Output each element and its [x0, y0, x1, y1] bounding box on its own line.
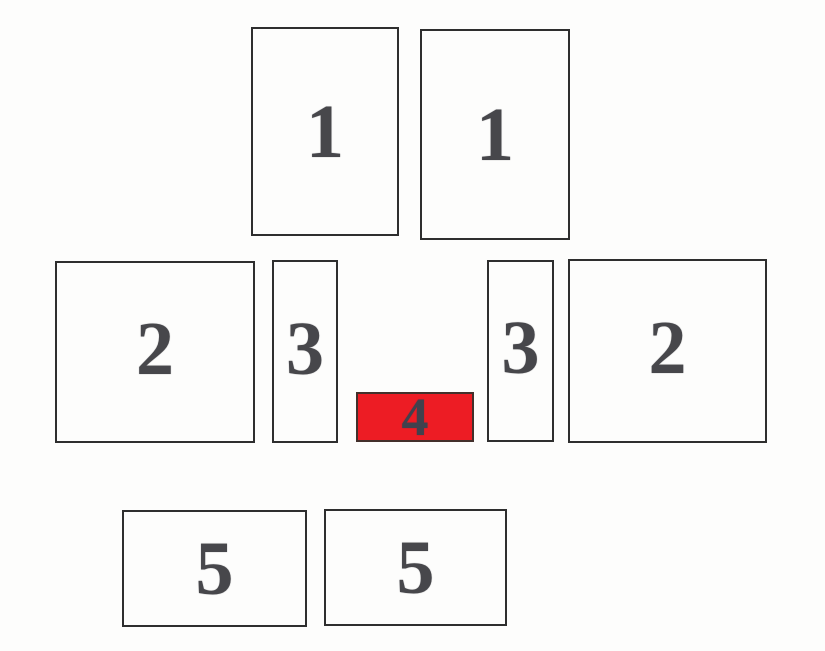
zone-number: 2: [649, 310, 687, 386]
zone-number: 3: [502, 310, 540, 386]
zone-number: 4: [402, 390, 429, 444]
zone-number: 2: [136, 311, 174, 387]
zone-box-4-highlighted: 4: [356, 392, 474, 442]
zone-box-2-left: 2: [55, 261, 255, 443]
zone-box-5-left: 5: [122, 510, 307, 627]
zone-box-1-right: 1: [420, 29, 570, 240]
zone-box-5-right: 5: [324, 509, 507, 626]
zone-number: 1: [306, 94, 344, 170]
zone-box-3-right: 3: [487, 260, 554, 442]
zone-number: 5: [196, 531, 234, 607]
numbered-zones-diagram: 1 1 2 3 4 3 2 5 5: [0, 0, 825, 651]
zone-box-1-left: 1: [251, 27, 399, 236]
zone-number: 1: [476, 97, 514, 173]
zone-box-2-right: 2: [568, 259, 767, 443]
zone-number: 3: [286, 311, 324, 387]
zone-number: 5: [397, 530, 435, 606]
zone-box-3-left: 3: [272, 260, 338, 443]
